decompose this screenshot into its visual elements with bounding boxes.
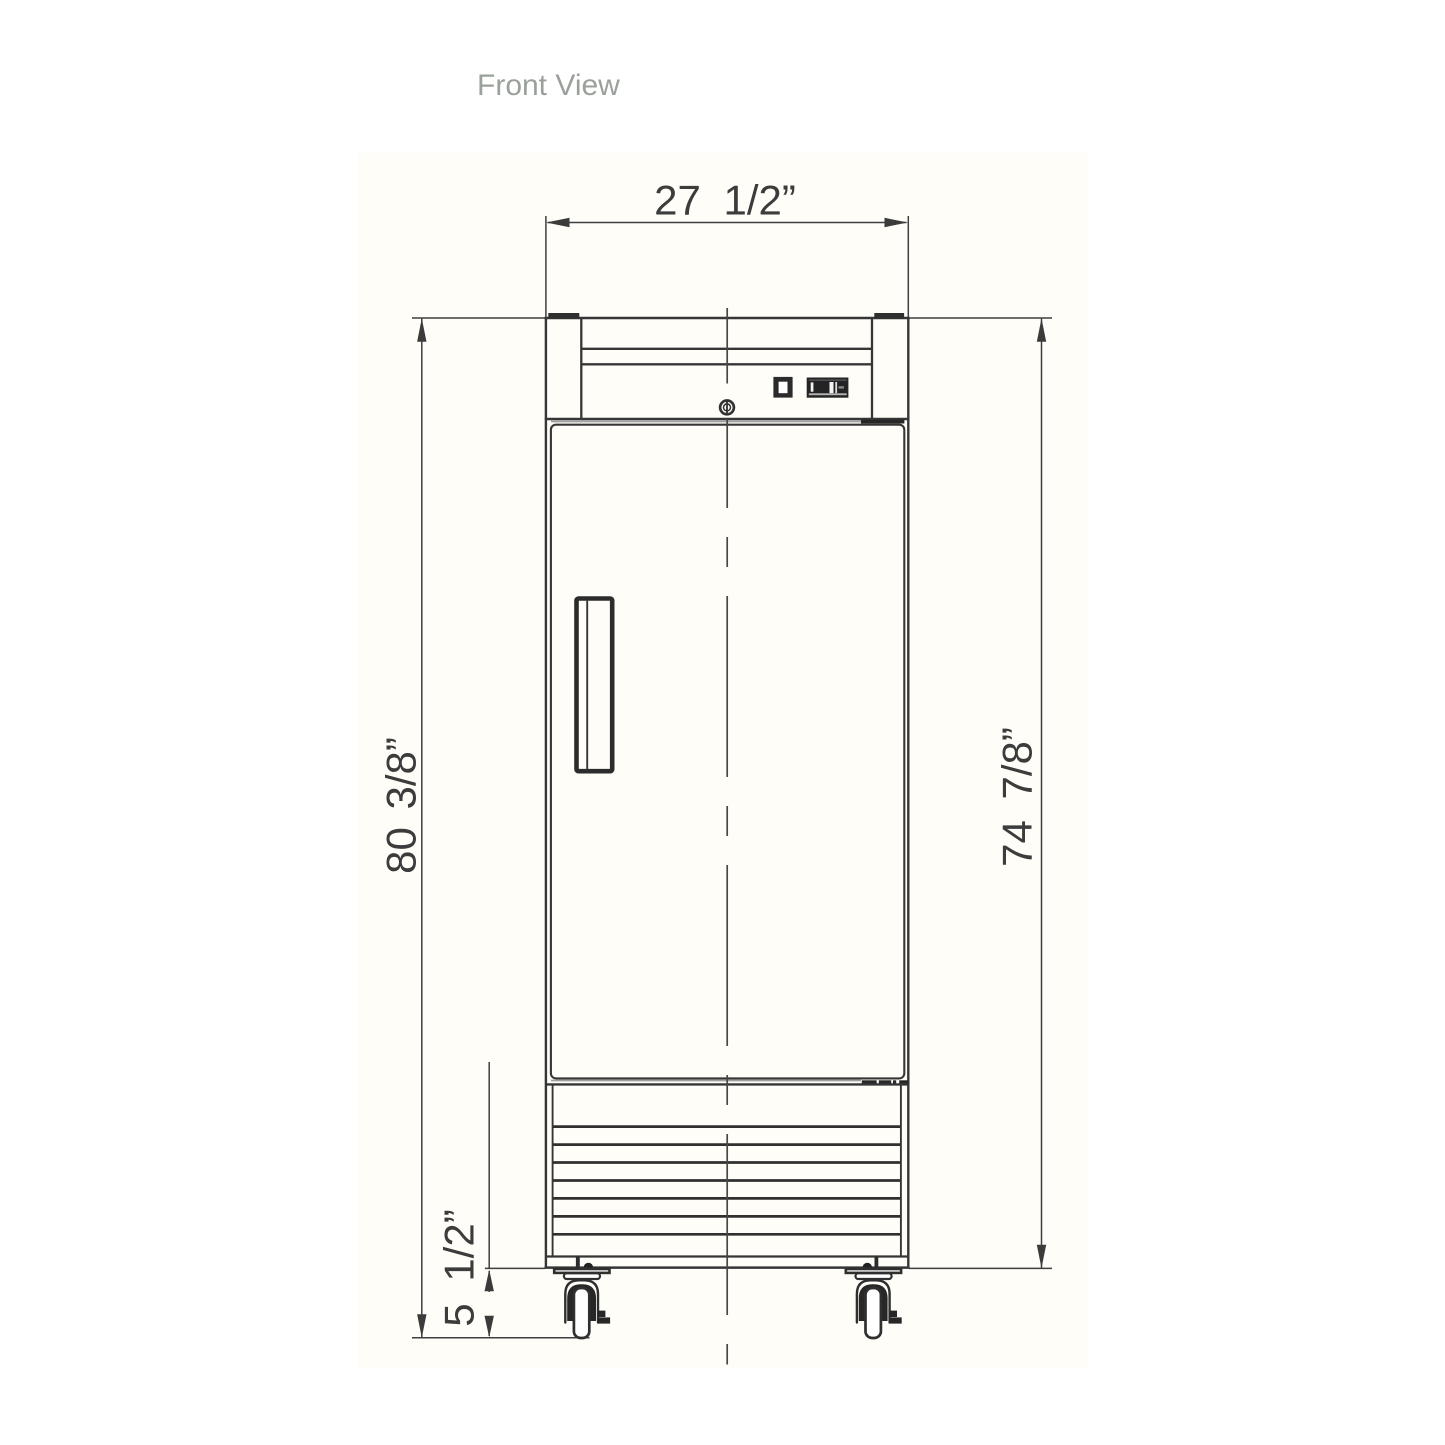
svg-text:27 1/2”: 27 1/2” — [654, 177, 796, 224]
svg-text:Front View: Front View — [477, 69, 620, 102]
svg-text:5 1/2”: 5 1/2” — [436, 1209, 483, 1326]
svg-text:74 7/8”: 74 7/8” — [994, 727, 1041, 867]
svg-text:80 3/8”: 80 3/8” — [378, 737, 425, 874]
